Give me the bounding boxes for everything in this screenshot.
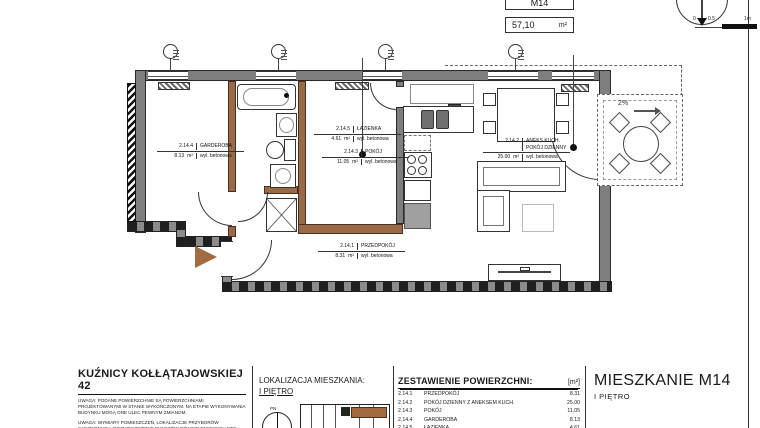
areas-table-header: ZESTAWIENIE POWIERZCHNI: [m²] [398,376,580,389]
room-area: 8.13m² [157,153,196,160]
unit-code: M14 [531,0,549,8]
mini-compass-label: PN [270,406,276,411]
table-row: 2.14.3POKÓJ11.05 [398,408,580,414]
row-id: 2.14.1 [398,391,424,397]
projection-line [445,65,682,66]
room-floor: wyl. betonowa [361,159,409,166]
scale-half: 0.5 [708,16,715,22]
wall-bottom-dashed [222,281,612,292]
rug [522,204,554,232]
dining-table-icon [497,88,555,142]
fridge-icon [404,180,431,201]
toilet-tank [284,139,296,161]
sheet-border [748,0,749,428]
partition-stub [228,226,236,237]
entrance-arrow-icon [195,246,217,268]
room-name: GARDEROBA [196,143,244,150]
row-name: POKÓJ [424,408,550,414]
areas-table-unit: [m²] [568,379,580,386]
chair-icon [483,93,496,106]
row-area: 8.31 [550,391,580,397]
unit-area-value: 57,10 [512,20,535,30]
radiator [561,84,589,92]
radiator [158,82,190,90]
radiator [335,82,369,90]
table-row: 2.14.2POKÓJ DZIENNY Z ANEKSEM KUCH.25.00 [398,400,580,406]
room-id: 2.14.2 [483,138,522,151]
address-note-2: UWAGA: WYMIARY POMIESZCZEŃ, LOKALIZACJE … [78,420,246,428]
window-marker-dim [281,48,287,60]
wardrobe-icon [266,198,297,232]
partition-pokoj-hall [298,224,403,234]
garderoba-door-arc [198,192,232,226]
room-label-pokoj: 2.14.3POKÓJ 11.05m²wyl. betonowa [322,149,409,165]
room-id: 2.14.1 [318,243,357,250]
balcony-slope: 2% [618,100,628,107]
sofa-icon [477,161,566,192]
sink-bowl-icon [436,110,449,129]
washing-machine-drum [275,168,291,184]
room-label-przedpokoj: 2.14.1PRZEDPOKÓJ 8.31m²wyl. betonowa [318,243,405,259]
balcony-table-icon [623,126,659,162]
room-area: 4.61m² [314,136,353,143]
window [256,71,296,80]
row-name: POKÓJ DZIENNY Z ANEKSEM KUCH. [424,400,550,406]
burner-icon [407,166,416,175]
location-title: LOKALIZACJA MIESZKANIA: [259,376,387,385]
window-marker-leader [385,59,386,71]
tv-icon [498,271,551,273]
bathtub-inner [243,88,289,106]
wall-step [176,221,186,247]
mini-plan-core [341,407,350,416]
window-marker-dim [388,48,394,60]
wall-left [135,70,146,233]
apartment-floor: I PIĘTRO [594,392,742,401]
footer-divider [393,366,394,428]
window-marker-leader [170,59,171,71]
row-id: 2.14.4 [398,417,424,423]
table-row: 2.14.1PRZEDPOKÓJ8.31 [398,391,580,397]
room-area: 11.05m² [322,159,361,166]
scale-zero: 0 [693,16,696,22]
window-marker-leader [515,59,516,71]
entrance-door-arc [232,240,272,280]
areas-table: ZESTAWIENIE POWIERZCHNI: [m²] 2.14.1PRZE… [398,376,580,428]
window-marker-dim [173,48,179,60]
room-id: 2.14.3 [322,149,361,156]
burner-icon [418,166,427,175]
room-id: 2.14.4 [157,143,196,150]
mini-plan-line [335,405,336,428]
mini-plan-line [323,405,324,428]
room-label-lazienka: 2.14.5ŁAZIENKA 4.61m²wyl. betonowa [314,126,401,142]
sink-bowl-icon [421,110,434,129]
chair-icon [556,93,569,106]
slope-arrow-line [634,110,656,112]
room-floor: wyl. betonowa [522,154,570,161]
pokoj-door-arc [370,83,397,110]
mini-plan-line [311,405,312,428]
kitchen-upper-counter [410,84,474,104]
apartment-title: MIESZKANIE M14 [594,372,742,390]
scale-bar-fill [722,24,757,29]
room-name: ANEKS KUCH.POKÓJ DZIENNY [522,138,570,151]
lamp-leader-line [573,55,574,147]
mini-plan-highlight-unit [351,407,387,418]
room-area: 25.00m² [483,154,522,161]
compass-needle-tip-icon [697,18,707,26]
room-name: ŁAZIENKA [353,126,401,133]
toilet-icon [266,141,284,159]
scale-one: 1m [744,16,751,22]
footer-divider [585,366,586,428]
tv-base [520,267,530,271]
projection-line [681,65,682,96]
row-area: 8.13 [550,417,580,423]
address-note-1: UWAGA: PODANE POWIERZCHNIE SĄ POWIERZCHN… [78,398,246,417]
window [148,71,188,80]
room-id: 2.14.5 [314,126,353,133]
washbasin-bowl [279,117,294,133]
partition-garderoba-bath [228,81,236,192]
insulation-hatch [127,83,136,222]
partition-bath-pokoj [298,81,306,234]
areas-table-title: ZESTAWIENIE POWIERZCHNI: [398,376,533,386]
footer-divider [252,366,253,428]
window [362,71,402,80]
address-title: KUŹNICY KOŁŁĄTAJOWSKIEJ 42 [78,368,246,395]
row-name: PRZEDPOKÓJ [424,391,550,397]
unit-area-box: 57,10 m² [505,17,574,33]
mini-building-plan [300,404,390,428]
room-label-garderoba: 2.14.4GARDEROBA 8.13m²wyl. betonowa [157,143,244,159]
row-area: 11.05 [550,408,580,414]
room-name: PRZEDPOKÓJ [357,243,405,250]
room-floor: wyl. betonowa [357,253,405,260]
location-floor: I PIĘTRO [259,387,387,396]
row-name: GARDEROBA [424,417,550,423]
window [488,71,538,80]
bathtub-faucet-icon [284,93,289,98]
window-marker-dim [518,48,524,60]
chair-icon [556,121,569,134]
burner-icon [418,155,427,164]
row-id: 2.14.3 [398,408,424,414]
room-floor: wyl. betonowa [196,153,244,160]
address-block: KUŹNICY KOŁŁĄTAJOWSKIEJ 42 UWAGA: PODANE… [78,368,246,428]
window-marker-leader [278,59,279,71]
bathroom-door-arc [238,192,268,222]
apartment-block: MIESZKANIE M14 I PIĘTRO [594,372,742,401]
drawing-sheet: M14 57,10 m² 0 0.5 1m [0,0,760,428]
lamp-point-icon [570,144,577,151]
sofa-icon [477,190,510,232]
room-name: POKÓJ [361,149,409,156]
row-area: 25.00 [550,400,580,406]
mini-compass-needle [277,412,278,428]
room-floor: wyl. betonowa [353,136,401,143]
unit-code-box: M14 [505,0,574,10]
location-block: LOKALIZACJA MIESZKANIA: I PIĘTRO [259,376,387,396]
chair-icon [483,121,496,134]
partition-kitchen-stub [396,81,404,87]
table-row: 2.14.4GARDEROBA8.13 [398,417,580,423]
unit-area-unit: m² [559,22,567,29]
room-label-aneks: 2.14.2ANEKS KUCH.POKÓJ DZIENNY 25.00m²wy… [483,138,570,161]
room-area: 8.31m² [318,253,357,260]
row-id: 2.14.2 [398,400,424,406]
kitchen-cabinet [404,203,431,229]
